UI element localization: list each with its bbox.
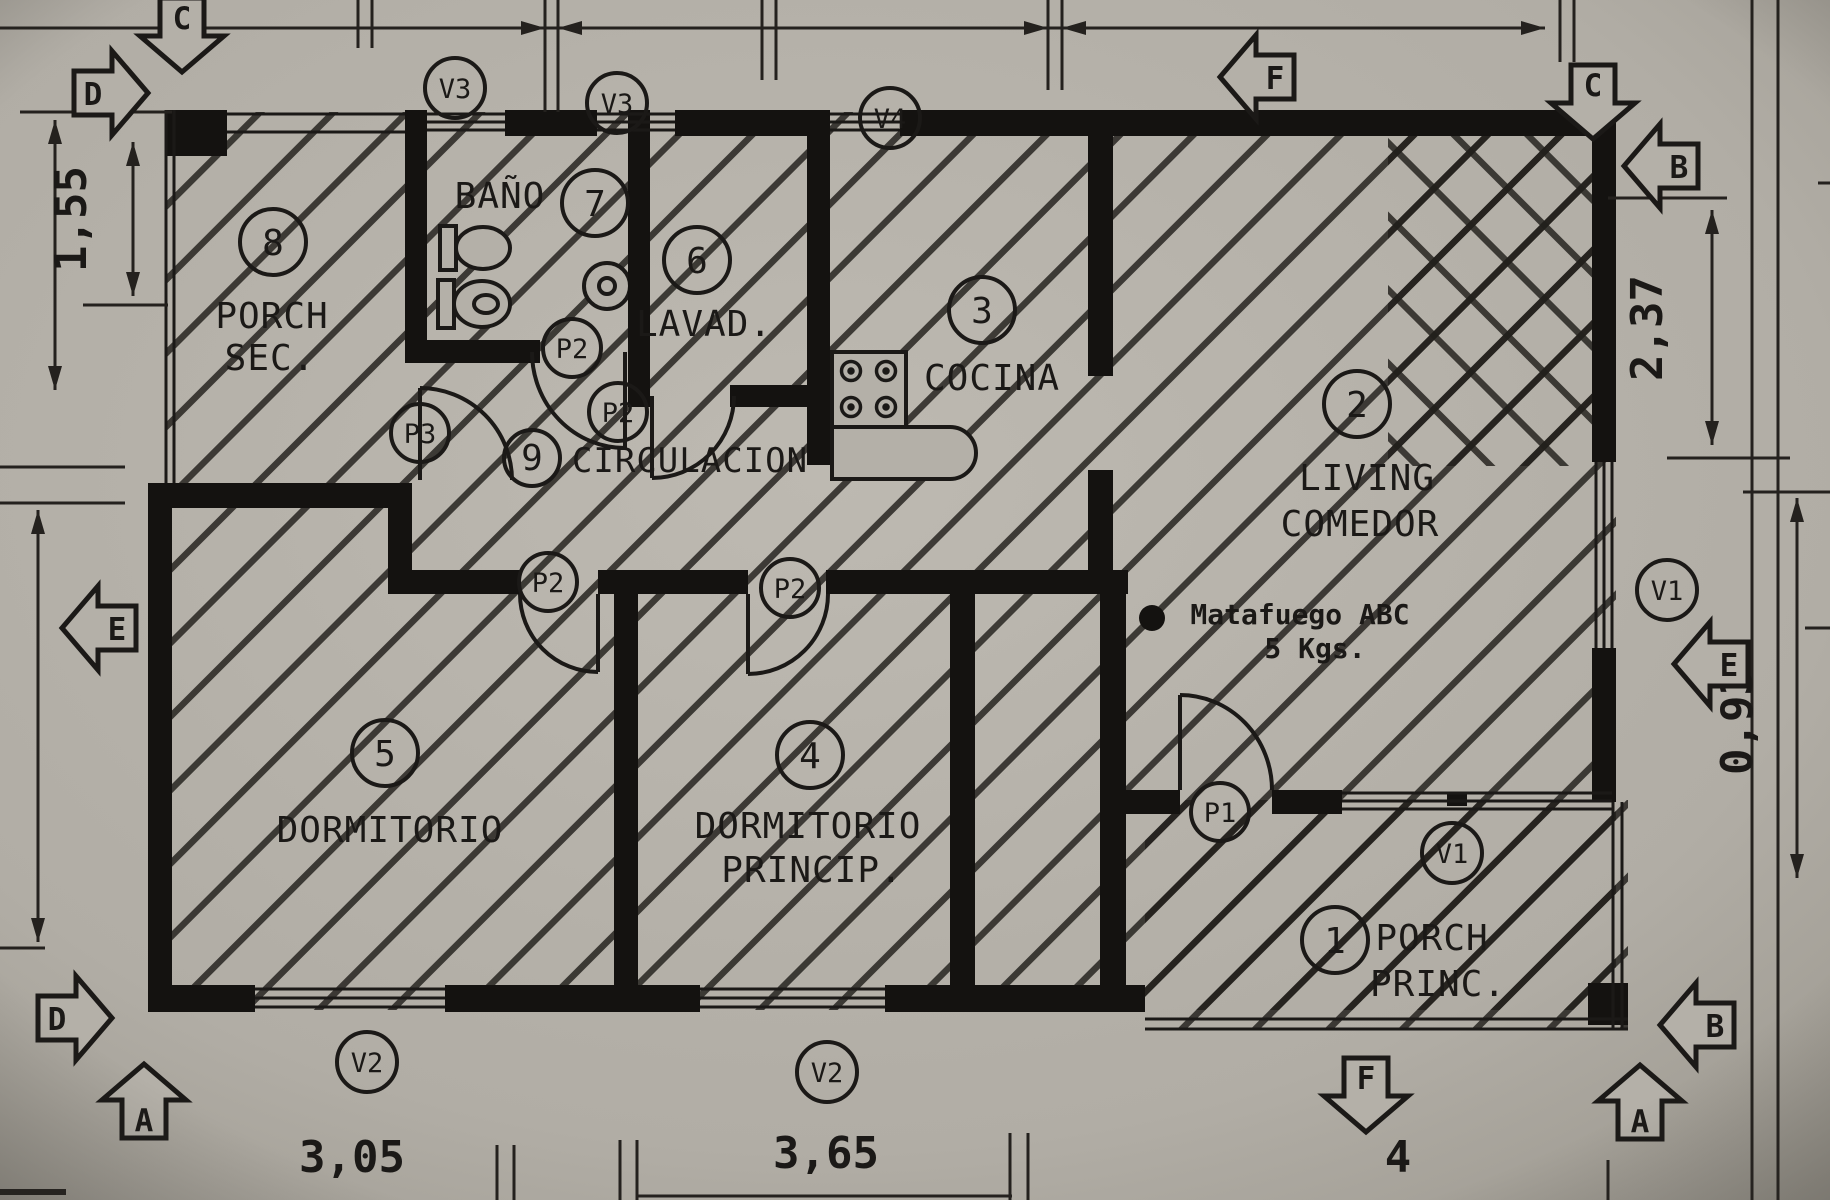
wall-right-lower (1592, 648, 1616, 802)
room-number: 6 (686, 241, 708, 282)
room-name: BAÑO (455, 175, 546, 217)
section-letter: D (48, 1002, 67, 1038)
door-label: P2 (532, 568, 565, 599)
room-name: PORCH (1375, 918, 1488, 959)
section-letter: C (173, 1, 192, 37)
living-corner-crosshatch (1388, 136, 1592, 466)
wall-bano-left (405, 110, 427, 363)
extinguisher-dot (1139, 605, 1165, 631)
room-number: 5 (374, 734, 396, 775)
room-number: 2 (1346, 385, 1368, 426)
window-label: V4 (874, 104, 907, 135)
room-name: SEC. (225, 338, 316, 379)
room-name: LIVING (1299, 458, 1435, 499)
section-letter: A (135, 1103, 154, 1139)
dim-237: 2,37 (1622, 275, 1673, 381)
dim-305: 3,05 (299, 1132, 405, 1183)
dim-4: 4 (1385, 1132, 1412, 1183)
section-letter: E (1720, 648, 1739, 684)
wall-right-upper (1592, 136, 1616, 462)
floor-plan-page: 1,55 2,37 0,93 3,05 3,65 4 8 PORCH SEC. … (0, 0, 1830, 1200)
window-label: V2 (351, 1048, 384, 1079)
bidet-drain (474, 295, 498, 313)
room-name: CIRCULACION (572, 441, 808, 481)
room-name: PRINCIP. (721, 850, 902, 891)
room-number: 4 (799, 736, 821, 777)
toilet-icon (456, 227, 510, 269)
door-label: P2 (556, 334, 589, 365)
section-letter: F (1357, 1061, 1376, 1097)
window-label: V1 (1651, 576, 1684, 607)
door-label: P3 (404, 419, 437, 450)
door-label: P1 (1204, 798, 1237, 829)
door-label: P2 (774, 574, 807, 605)
room-number: 7 (584, 184, 606, 225)
room-number: 9 (521, 438, 543, 479)
room-name: DORMITORIO (277, 810, 504, 851)
window-label: V3 (439, 74, 472, 105)
window-label: V3 (601, 89, 634, 120)
room-name: PRINC. (1370, 964, 1506, 1005)
room-number: 3 (971, 291, 993, 332)
wall-dorm-divider (614, 594, 638, 987)
sink-drain (599, 278, 615, 294)
room-name: COMEDOR (1281, 504, 1440, 545)
wall-bano-bottom (405, 340, 540, 363)
extinguisher-text: Matafuego ABC (1190, 598, 1409, 631)
wall-bano-lavad (628, 110, 650, 407)
dim-155: 1,55 (46, 166, 97, 272)
kitchen-counter (832, 427, 976, 479)
wall-lavad-bottom (730, 385, 830, 407)
room-name: DORMITORIO (695, 806, 922, 847)
wall-step (388, 505, 412, 594)
toilet-tank (440, 226, 456, 270)
floor-plan-drawing: 1,55 2,37 0,93 3,05 3,65 4 8 PORCH SEC. … (0, 0, 1830, 1200)
section-letter: A (1631, 1104, 1650, 1140)
wall-lavad-cocina (807, 110, 830, 465)
extinguisher-text: 5 Kgs. (1264, 632, 1365, 665)
wall-dormp-right (950, 594, 975, 987)
dim-365: 3,65 (773, 1128, 879, 1179)
room-name: COCINA (924, 358, 1060, 399)
room-number: 8 (262, 223, 284, 264)
window-label: V1 (1436, 839, 1469, 870)
section-letter: D (84, 77, 103, 113)
section-letter: B (1670, 150, 1689, 186)
room-name: LAVAD. (636, 304, 772, 345)
section-letter: B (1706, 1009, 1725, 1045)
section-letter: C (1584, 68, 1603, 104)
section-letter: E (108, 612, 127, 648)
door-label: P2 (602, 398, 635, 429)
bidet-base (438, 280, 454, 328)
wall-left (148, 483, 172, 1012)
section-letter: F (1266, 61, 1285, 97)
window-label: V2 (811, 1058, 844, 1089)
room-number: 1 (1324, 921, 1346, 962)
wall-porchsec-bottom (148, 483, 412, 508)
wall-cocina-living-upper (1088, 136, 1113, 376)
room-name: PORCH (215, 296, 328, 337)
